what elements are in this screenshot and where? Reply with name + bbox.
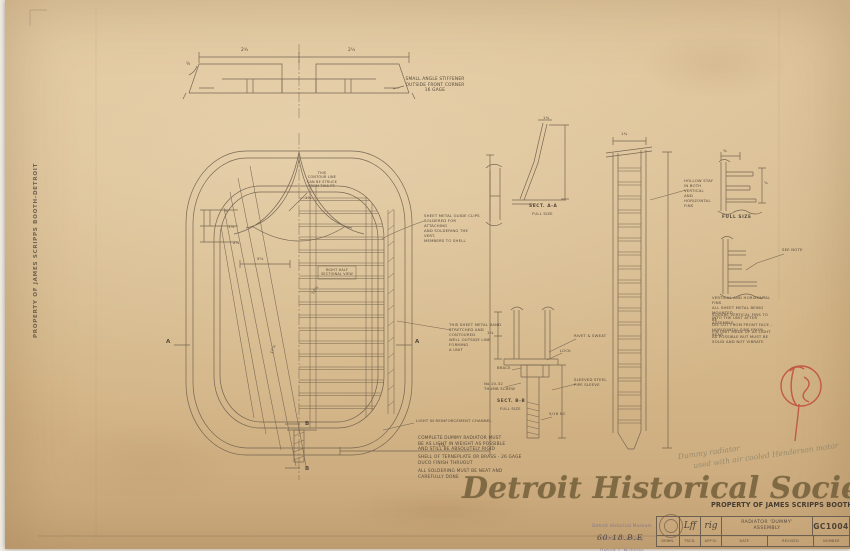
section-marker-a: A bbox=[166, 339, 170, 346]
dim-label: 2¼ bbox=[348, 48, 355, 54]
see-note-callout: SEE NOTE bbox=[782, 248, 803, 253]
label-text: DRWN. bbox=[661, 539, 674, 543]
section-marker-b: B bbox=[305, 466, 309, 473]
callout-thumbscrew: No.10-32 THUMB SCREW bbox=[484, 382, 516, 392]
accession-line: Detroit Historical Museum bbox=[584, 523, 660, 529]
callout-rivet: RIVET & SWEAT bbox=[574, 334, 606, 339]
label-appd: APP'D. bbox=[701, 536, 722, 546]
sect-aa-subtitle: FULL SIZE bbox=[532, 212, 553, 217]
band-note: THIS SHEET METAL BAND STRETCHED AND CONT… bbox=[449, 323, 503, 353]
dim-label: 2¾ bbox=[241, 48, 248, 54]
label-trcd: TRCD. bbox=[680, 536, 701, 546]
fin-note-3: FIN UNIT MADE UP AS LIGHT AS POSSIBLE BU… bbox=[712, 330, 774, 345]
drawing-scan: PROPERTY OF JAMES SCRIPPS BOOTH-DETROIT … bbox=[0, 0, 850, 551]
callout-nc-thread: 5/16 NC bbox=[549, 412, 566, 417]
sect-bb-title: SECT. B-B bbox=[497, 399, 525, 405]
dim-label: ⅝ bbox=[764, 181, 768, 186]
label-text: DATE bbox=[739, 539, 749, 543]
label-text: REVISED bbox=[782, 539, 799, 543]
dim-label: 1⅝ bbox=[228, 225, 235, 230]
top-view-linework bbox=[183, 44, 415, 118]
dim-label: ¾ bbox=[186, 62, 190, 68]
half-section-note: RIGHT HALF SECTIONAL VIEW bbox=[319, 268, 355, 277]
contour-note: THIS CONTOUR LINE CAN BE STRUCK FROM THI… bbox=[305, 171, 339, 189]
section-marker-a: A bbox=[415, 339, 419, 346]
sect-bb-subtitle: FULL SIZE bbox=[500, 407, 521, 412]
callout-brace: BRACE bbox=[497, 366, 511, 371]
channel-note: LIGHT IN REINFORCEMENT CHANNEL bbox=[416, 419, 492, 424]
hollow-stay-note: HOLLOW STAY IN BOTH VERTICAL AND HORIZON… bbox=[684, 179, 720, 209]
title-block-drawing-title: RADIATOR 'DUMMY' ASSEMBLY bbox=[722, 517, 813, 535]
guide-clips-note: SHEET METAL GUIDE CLIPS SOLDERED FOR ATT… bbox=[424, 214, 480, 244]
general-note-1: COMPLETE DUMMY RADIATOR MUST BE AS LIGHT… bbox=[418, 436, 530, 453]
label-text: TRCD. bbox=[684, 539, 696, 543]
label-text: APP'D. bbox=[705, 539, 718, 543]
dim-label: ⅜ bbox=[723, 149, 727, 154]
round-seal-stamp bbox=[659, 514, 683, 538]
sect-aa-title: SECT. A-A bbox=[529, 204, 557, 210]
title-block-signature-1: Lff bbox=[680, 517, 701, 535]
section-marker-b: B bbox=[305, 421, 309, 428]
signature-scribble: Lff bbox=[684, 521, 696, 531]
label-date: DATE bbox=[722, 536, 768, 546]
property-stamp: PROPERTY OF JAMES SCRIPPS BOOTH-DETROIT bbox=[711, 501, 850, 509]
top-view-corner-note: SMALL ANGLE STIFFENER OUTSIDE FRONT CORN… bbox=[403, 77, 467, 94]
general-note-2: SHELL OF TERNEPLATE OR BRASS - 26 GAGE D… bbox=[418, 455, 530, 466]
label-revised: REVISED bbox=[768, 536, 814, 546]
label-text: NUMBER bbox=[823, 539, 840, 543]
accession-number-handwritten: 60-18.B.E bbox=[597, 533, 643, 542]
dim-label: ⅞ bbox=[224, 209, 228, 214]
dim-label: 1¾ bbox=[543, 116, 550, 121]
sect-aa-linework bbox=[486, 120, 569, 226]
drawing-number: GC1004 bbox=[813, 522, 849, 531]
sect-bb-linework bbox=[494, 307, 576, 438]
title-block-number-cell: GC1004 bbox=[813, 517, 849, 535]
right-details-linework bbox=[718, 152, 784, 298]
callout-sleeve: SLEEVED STEEL PIPE SLEEVE bbox=[574, 378, 612, 388]
full-size-label: FULL SIZE bbox=[722, 215, 752, 221]
dim-label: 9⅝ bbox=[257, 257, 264, 262]
title-block: Lff rig RADIATOR 'DUMMY' ASSEMBLY GC1004… bbox=[656, 516, 850, 547]
dim-label: 2⅞ bbox=[233, 241, 240, 246]
side-view-linework bbox=[606, 137, 686, 449]
left-edge-property-stamp: PROPERTY OF JAMES SCRIPPS BOOTH-DETROIT bbox=[33, 163, 39, 338]
dim-label: 1⅝ bbox=[305, 196, 312, 201]
dim-label: 1¾ bbox=[621, 132, 628, 137]
title-block-signature-2: rig bbox=[701, 517, 722, 535]
label-number: NUMBER bbox=[814, 536, 849, 546]
signature-scribble: rig bbox=[705, 521, 718, 531]
drawing-title-text: RADIATOR 'DUMMY' ASSEMBLY bbox=[741, 520, 792, 531]
red-monogram-mark bbox=[781, 366, 821, 441]
callout-lock: LOCK bbox=[560, 349, 571, 354]
dim-label: 1⅛ bbox=[487, 331, 494, 336]
